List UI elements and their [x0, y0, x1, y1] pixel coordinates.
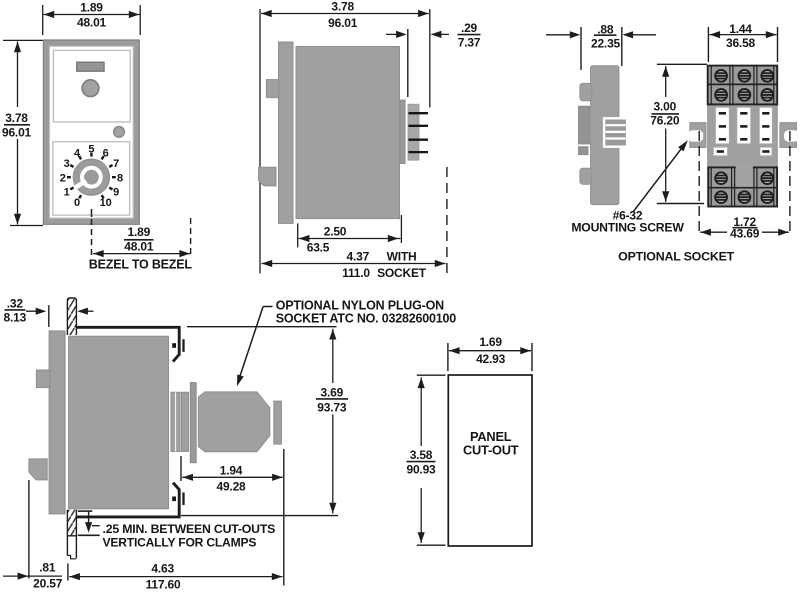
- svg-text:96.01: 96.01: [328, 16, 358, 30]
- svg-text:10: 10: [100, 197, 112, 209]
- svg-text:OPTIONAL NYLON PLUG-ON: OPTIONAL NYLON PLUG-ON: [276, 299, 444, 313]
- svg-text:96.01: 96.01: [2, 125, 32, 139]
- svg-text:93.73: 93.73: [317, 400, 347, 414]
- svg-text:43.69: 43.69: [730, 227, 760, 241]
- svg-text:1: 1: [64, 187, 70, 199]
- svg-text:WITH: WITH: [387, 249, 417, 263]
- svg-text:1.89: 1.89: [128, 225, 151, 239]
- svg-text:3.78: 3.78: [331, 0, 354, 14]
- svg-text:SOCKET: SOCKET: [377, 266, 427, 280]
- svg-text:4.37: 4.37: [347, 249, 370, 263]
- svg-text:5: 5: [88, 144, 94, 156]
- svg-text:1.94: 1.94: [220, 463, 243, 477]
- svg-text:3.69: 3.69: [321, 385, 344, 399]
- svg-text:8.13: 8.13: [4, 310, 27, 324]
- svg-text:SOCKET ATC NO. 03282600100: SOCKET ATC NO. 03282600100: [276, 312, 457, 326]
- svg-text:42.93: 42.93: [476, 352, 506, 366]
- svg-text:49.28: 49.28: [216, 479, 246, 493]
- svg-text:CUT-OUT: CUT-OUT: [463, 443, 519, 458]
- svg-text:0: 0: [74, 197, 80, 209]
- svg-text:8: 8: [117, 172, 123, 184]
- svg-text:2: 2: [60, 172, 66, 184]
- svg-text:OPTIONAL SOCKET: OPTIONAL SOCKET: [618, 250, 734, 264]
- svg-text:90.93: 90.93: [406, 462, 436, 476]
- svg-text:22.35: 22.35: [591, 36, 621, 50]
- svg-text:48.01: 48.01: [124, 240, 154, 254]
- svg-text:VERTICALLY FOR CLAMPS: VERTICALLY FOR CLAMPS: [103, 536, 257, 550]
- svg-text:7.37: 7.37: [458, 36, 481, 50]
- svg-text:.81: .81: [39, 561, 56, 575]
- svg-text:48.01: 48.01: [77, 16, 107, 30]
- svg-text:117.60: 117.60: [146, 578, 181, 592]
- svg-text:2.50: 2.50: [324, 224, 347, 238]
- svg-text:3.00: 3.00: [654, 100, 677, 114]
- svg-text:3: 3: [64, 158, 70, 170]
- svg-text:3.58: 3.58: [410, 448, 433, 462]
- svg-text:.32: .32: [7, 297, 24, 311]
- svg-text:4: 4: [74, 148, 81, 160]
- svg-text:20.57: 20.57: [33, 577, 63, 591]
- svg-text:.25 MIN. BETWEEN CUT-OUTS: .25 MIN. BETWEEN CUT-OUTS: [103, 522, 276, 536]
- svg-text:1.44: 1.44: [729, 22, 752, 36]
- svg-text:1.89: 1.89: [80, 1, 103, 15]
- svg-text:1.69: 1.69: [479, 335, 502, 349]
- svg-text:76.20: 76.20: [650, 113, 680, 127]
- svg-text:9: 9: [113, 187, 119, 199]
- svg-text:111.0: 111.0: [342, 266, 370, 280]
- svg-text:BEZEL TO BEZEL: BEZEL TO BEZEL: [89, 258, 193, 272]
- svg-text:6: 6: [103, 148, 109, 160]
- svg-text:.29: .29: [461, 21, 478, 35]
- svg-text:MOUNTING SCREW: MOUNTING SCREW: [571, 220, 684, 234]
- svg-text:3.78: 3.78: [5, 111, 28, 125]
- svg-text:36.58: 36.58: [726, 36, 756, 50]
- svg-text:4.63: 4.63: [151, 561, 174, 575]
- svg-text:.88: .88: [597, 22, 614, 36]
- svg-text:7: 7: [113, 158, 119, 170]
- svg-text:63.5: 63.5: [307, 240, 330, 254]
